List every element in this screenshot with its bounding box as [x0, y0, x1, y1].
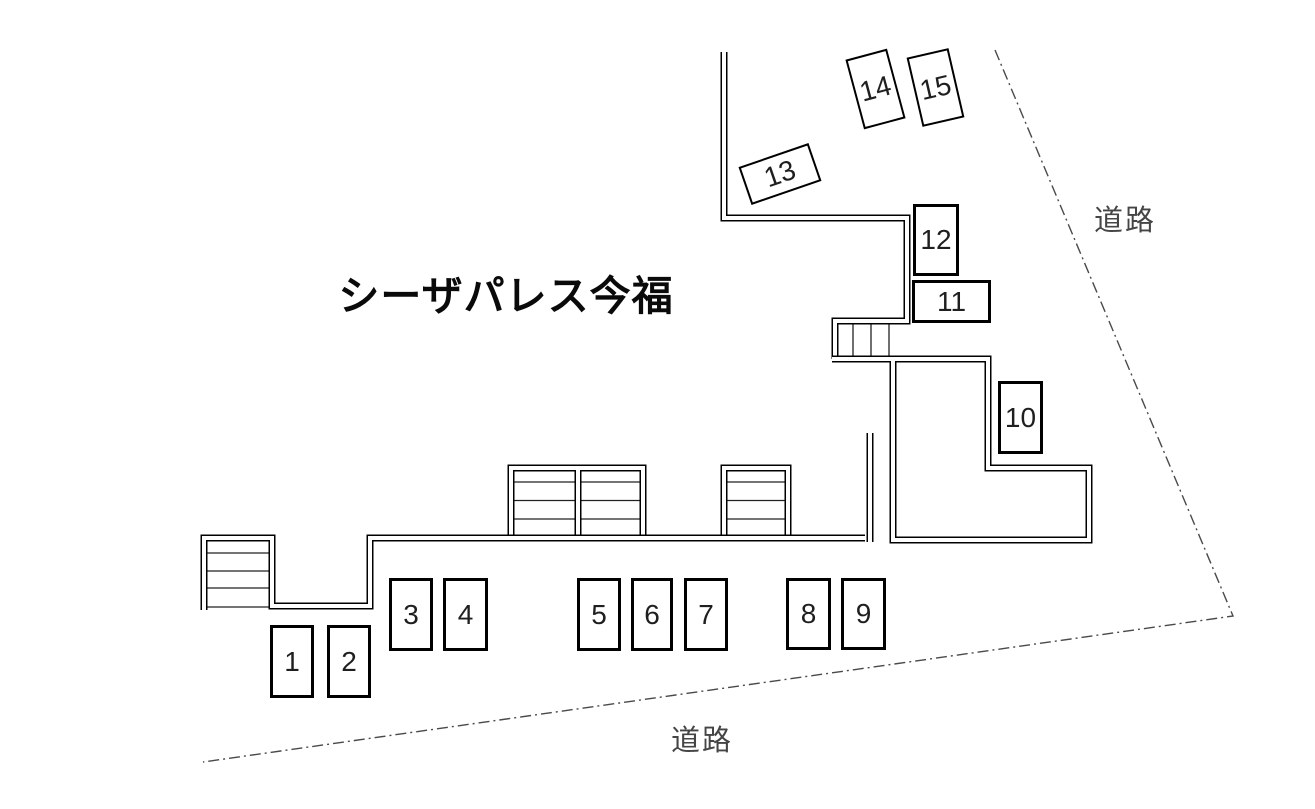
parking-space-label: 3	[403, 601, 419, 629]
parking-space-label: 11	[937, 288, 966, 316]
parking-space-8: 8	[786, 578, 831, 650]
parking-space-label: 5	[591, 601, 607, 629]
parking-space-label: 9	[856, 600, 872, 628]
parking-space-7: 7	[684, 578, 728, 651]
parking-space-3: 3	[389, 578, 433, 651]
parking-space-4: 4	[443, 578, 488, 651]
building-walls	[204, 52, 1089, 610]
parking-space-label: 15	[917, 70, 954, 104]
site-plan-drawing	[0, 0, 1315, 809]
parking-space-2: 2	[327, 625, 371, 698]
parking-space-label: 4	[458, 601, 474, 629]
parking-space-1: 1	[270, 625, 314, 698]
parking-space-label: 1	[284, 648, 300, 676]
parking-space-label: 14	[857, 71, 894, 106]
parking-space-11: 11	[912, 280, 991, 323]
site-plan: シーザパレス今福 道路 道路 1 2 3 4 5 6 7 8 9 10 11 1…	[0, 0, 1315, 809]
parking-space-10: 10	[998, 381, 1043, 454]
parking-space-label: 10	[1005, 404, 1036, 432]
parking-space-label: 13	[761, 156, 800, 193]
parking-space-9: 9	[841, 578, 886, 650]
parking-space-label: 8	[801, 600, 817, 628]
road-label-bottom: 道路	[671, 717, 733, 759]
parking-space-label: 7	[698, 601, 714, 629]
road-label-top: 道路	[1094, 197, 1156, 239]
parking-space-5: 5	[577, 578, 621, 651]
plan-title: シーザパレス今福	[338, 262, 674, 322]
parking-space-label: 6	[644, 601, 660, 629]
parking-space-6: 6	[631, 578, 673, 651]
parking-space-12: 12	[913, 204, 959, 276]
parking-space-label: 12	[920, 226, 951, 254]
parking-space-label: 2	[341, 648, 357, 676]
